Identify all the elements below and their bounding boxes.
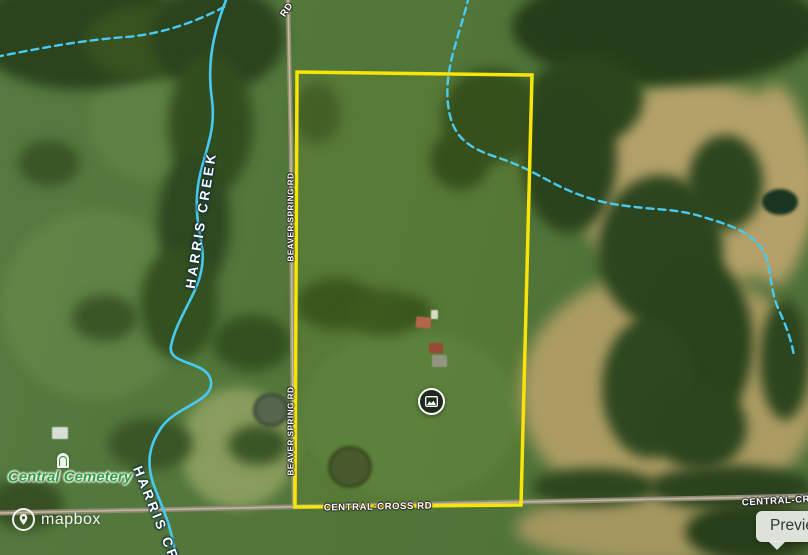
mapbox-logo[interactable]: mapbox: [12, 508, 101, 531]
image-icon: [425, 396, 438, 407]
property-boundary[interactable]: [295, 72, 532, 507]
cemetery-icon: [57, 453, 69, 468]
mapbox-wordmark: mapbox: [41, 511, 101, 529]
road-label-west-upper: BEAVER SPRING RD: [287, 172, 296, 261]
creek-path-northwest-dashed: [0, 6, 226, 57]
road-label-west-lower: BEAVER SPRING RD: [287, 386, 296, 475]
photo-marker[interactable]: [418, 388, 445, 415]
mapbox-pin-icon: [12, 508, 35, 531]
road-label-south: CENTRAL-CROSS RD: [324, 501, 432, 514]
map-canvas[interactable]: HARRIS CREEK HARRIS CREEK RD BEAVER SPRI…: [0, 0, 808, 555]
preview-tooltip-pointer: [768, 541, 786, 555]
preview-button[interactable]: Preview: [756, 511, 808, 542]
cemetery-label: Central Cemetery: [8, 469, 132, 486]
